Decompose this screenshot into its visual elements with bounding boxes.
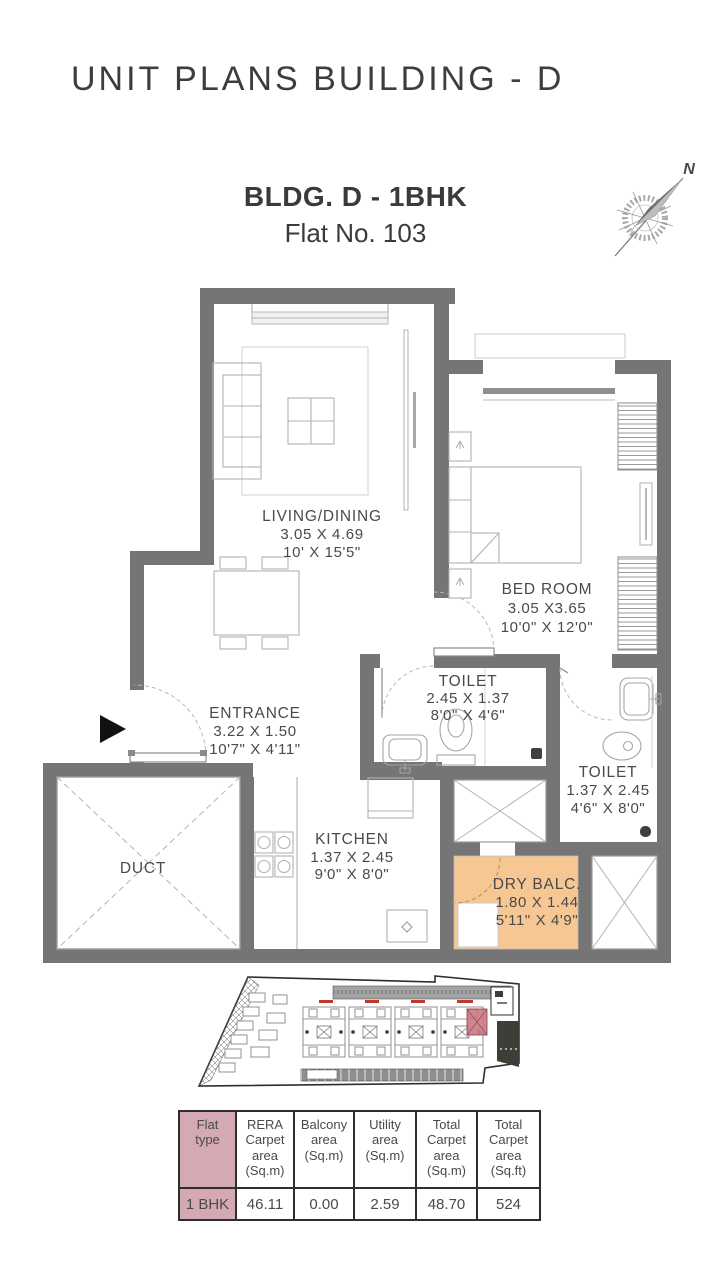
cell-rera-carpet: 46.11 (236, 1188, 294, 1220)
bed-icon (449, 432, 581, 598)
cell-utility: 2.59 (354, 1188, 416, 1220)
dry-balcony-label: DRY BALC. (493, 876, 581, 893)
toilet1-drain-icon (531, 748, 542, 759)
toilet1-dim-ft: 8'0" X 4'6" (431, 707, 506, 724)
bedroom-door-icon (434, 592, 494, 656)
cell-total-sqm: 48.70 (416, 1188, 477, 1220)
toilet2-door-icon (560, 668, 612, 720)
entrance-dim-ft: 10'7" X 4'11" (209, 741, 300, 758)
toilet2-drain-icon (640, 826, 651, 837)
living-room-dim-m: 3.05 X 4.69 (280, 526, 363, 543)
col-header-balcony: Balcony area (Sq.m) (294, 1111, 354, 1188)
table-header-row: Flat type RERA Carpet area (Sq.m) Balcon… (179, 1111, 540, 1188)
toilet2-basin-icon (620, 678, 661, 720)
key-plan (185, 973, 530, 1095)
sofa-icon (213, 363, 261, 479)
kitchen-dim-m: 1.37 X 2.45 (310, 849, 393, 866)
coffee-table-icon (288, 398, 334, 444)
bedroom-dim-ft: 10'0" X 12'0" (501, 619, 594, 636)
kitchen-dim-ft: 9'0" X 8'0" (315, 866, 390, 883)
page-title: UNIT PLANS BUILDING - D (71, 60, 564, 99)
living-window-icon (252, 304, 388, 324)
bedroom-dim-m: 3.05 X3.65 (508, 600, 587, 617)
cell-total-sqft: 524 (477, 1188, 540, 1220)
col-header-total-sqm: Total Carpet area (Sq.m) (416, 1111, 477, 1188)
dining-table-icon (214, 557, 299, 649)
kitchen-sink-icon (387, 910, 427, 942)
col-header-flat-type: Flat type (179, 1111, 236, 1188)
col-header-utility: Utility area (Sq.m) (354, 1111, 416, 1188)
kitchen-counter-icon (255, 777, 297, 949)
brochure-page: UNIT PLANS BUILDING - D BLDG. D - 1BHK F… (0, 0, 711, 1266)
dry-balcony-dim-ft: 5'11" X 4'9" (496, 912, 579, 929)
kitchen-label: KITCHEN (315, 831, 389, 848)
compass-icon: N (603, 156, 703, 266)
area-table: Flat type RERA Carpet area (Sq.m) Balcon… (178, 1110, 541, 1221)
floor-plan: LIVING/DINING 3.05 X 4.69 10' X 15'5" BE… (30, 278, 700, 970)
col-header-total-sqft: Total Carpet area (Sq.ft) (477, 1111, 540, 1188)
compass-north-label: N (683, 161, 695, 178)
wardrobe-icon (618, 403, 657, 650)
entrance-arrow-icon (100, 715, 126, 743)
bedroom-window-icon (475, 334, 625, 400)
col-header-rera-carpet: RERA Carpet area (Sq.m) (236, 1111, 294, 1188)
duct-label: DUCT (120, 860, 166, 877)
toilet1-label: TOILET (439, 673, 498, 690)
table-row: 1 BHK 46.11 0.00 2.59 48.70 524 (179, 1188, 540, 1220)
bedroom-label: BED ROOM (502, 581, 593, 598)
living-room-dim-ft: 10' X 15'5" (283, 544, 361, 561)
duct-middle (454, 780, 546, 842)
cell-flat-type: 1 BHK (179, 1188, 236, 1220)
cell-balcony: 0.00 (294, 1188, 354, 1220)
entrance-dim-m: 3.22 X 1.50 (213, 723, 296, 740)
toilet2-dim-m: 1.37 X 2.45 (566, 782, 649, 799)
toilet2-label: TOILET (579, 764, 638, 781)
living-room-label: LIVING/DINING (262, 508, 382, 525)
toilet1-dim-m: 2.45 X 1.37 (426, 690, 509, 707)
tv-unit-icon (404, 330, 416, 510)
toilet2-wc-icon (603, 676, 652, 768)
entrance-door-icon (128, 685, 207, 762)
fridge-icon (368, 778, 413, 818)
toilet2-dim-ft: 4'6" X 8'0" (571, 800, 646, 817)
duct-bottom-right (592, 856, 657, 949)
entrance-label: ENTRANCE (209, 705, 301, 722)
dry-balcony-dim-m: 1.80 X 1.44 (495, 894, 578, 911)
highlighted-unit (467, 1009, 487, 1035)
